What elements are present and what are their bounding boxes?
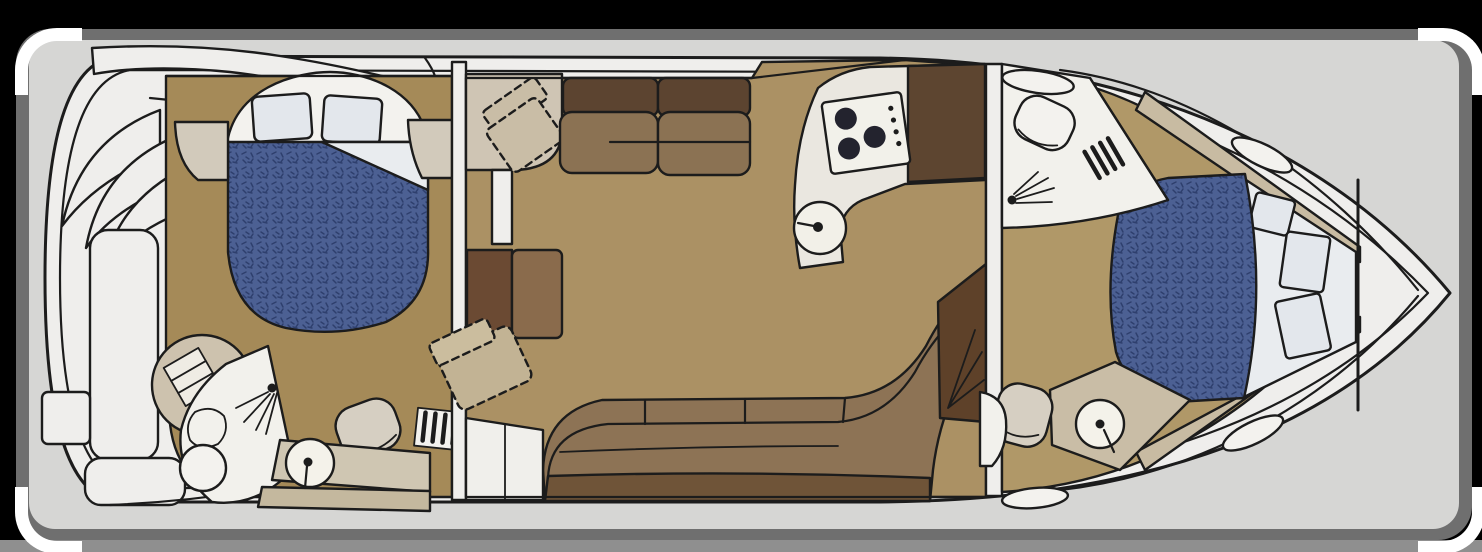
cooktop <box>821 92 910 174</box>
aft-pillow-port <box>252 93 313 142</box>
forward-pillow-1 <box>1248 192 1296 237</box>
galley-counter-dark-section <box>908 64 985 182</box>
forward-pillow-2 <box>1279 231 1330 293</box>
engine-hatch <box>90 230 158 460</box>
aft-bulkhead-wall <box>452 62 466 500</box>
screenshot-stage <box>0 0 1482 552</box>
sofa-back-right <box>658 78 750 116</box>
swim-step <box>42 392 90 444</box>
aft-pillow-starboard <box>321 95 382 145</box>
yacht-floorplan <box>0 0 1482 552</box>
salon-doorway-landing <box>492 170 512 244</box>
sofa-back-left <box>563 78 658 116</box>
shower-drain-circle <box>180 445 226 491</box>
cockpit-bottom-bench <box>85 458 185 505</box>
sofa-seat-right <box>658 112 750 175</box>
salon-sofa <box>560 78 750 175</box>
aft-vanity-cabinet <box>258 487 430 511</box>
